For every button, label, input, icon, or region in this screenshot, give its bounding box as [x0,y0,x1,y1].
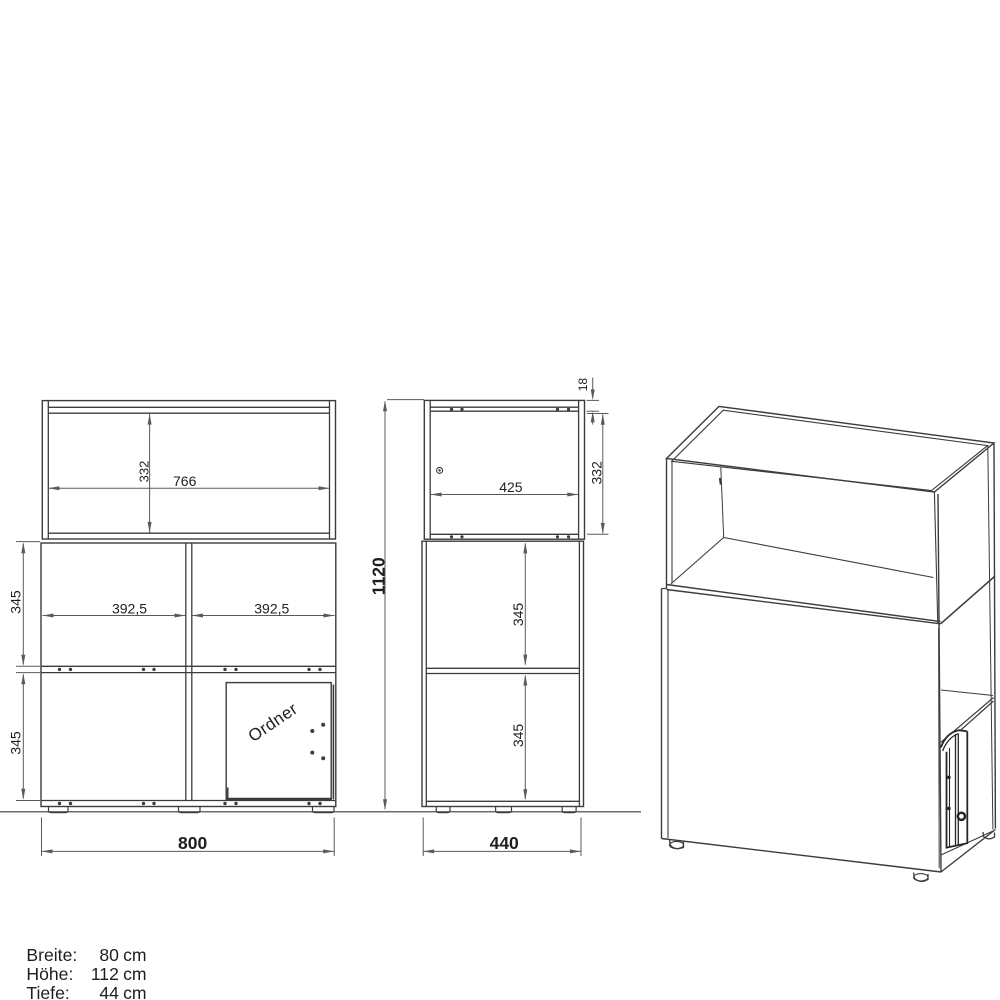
svg-text:392,5: 392,5 [254,600,289,616]
svg-text:18: 18 [576,378,590,392]
svg-text:332: 332 [137,461,152,483]
svg-text:440: 440 [490,833,519,853]
svg-text:345: 345 [510,724,526,748]
svg-text:392,5: 392,5 [112,600,147,616]
svg-text:345: 345 [7,590,23,614]
svg-text:1120: 1120 [369,557,389,595]
svg-text:766: 766 [173,473,197,489]
svg-text:425: 425 [499,479,523,495]
svg-text:Ordner: Ordner [245,699,301,746]
svg-text:332: 332 [588,461,604,485]
svg-text:345: 345 [7,731,23,755]
svg-text:345: 345 [510,603,526,627]
svg-text:800: 800 [178,833,207,853]
